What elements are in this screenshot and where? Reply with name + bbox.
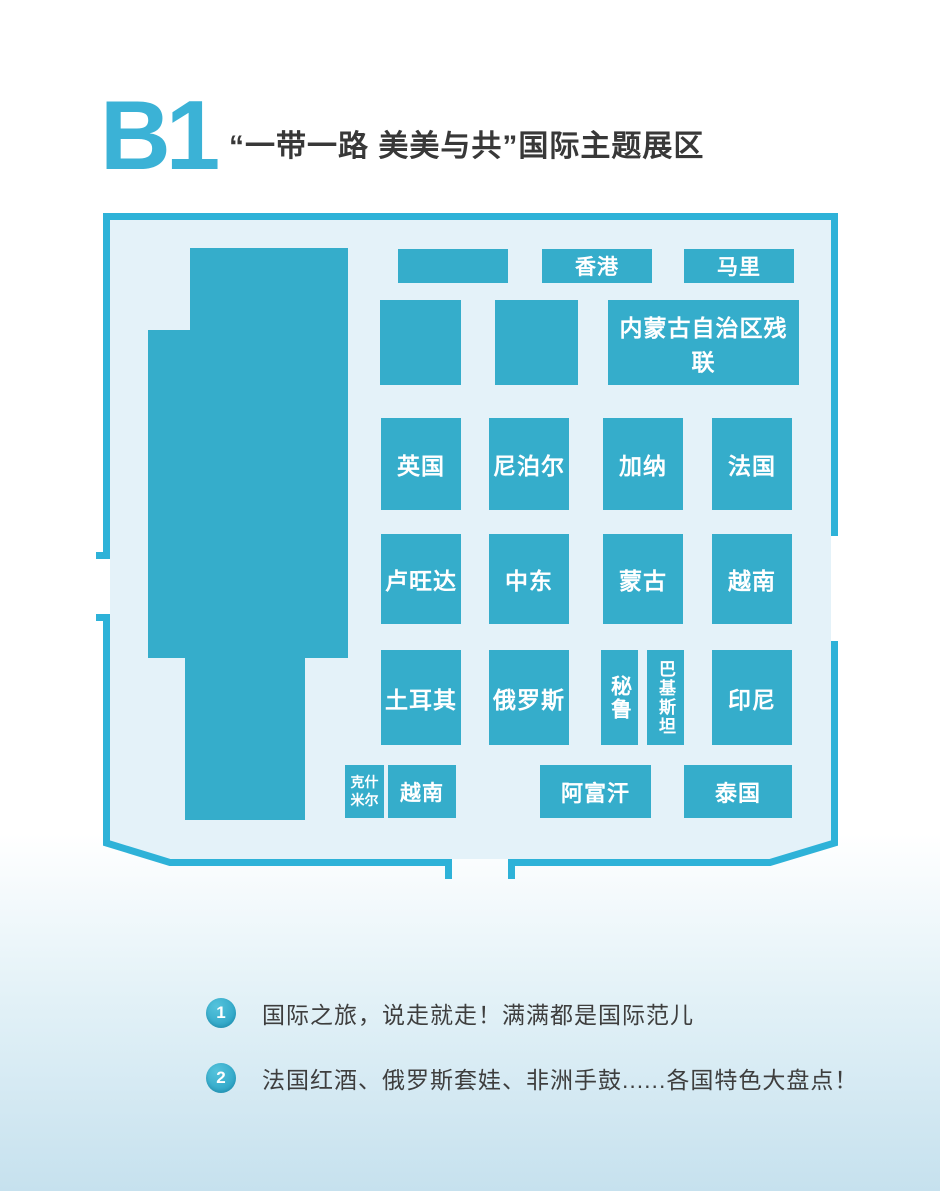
note-number-badge: 1 <box>206 998 236 1028</box>
booth-label: 尼泊尔 <box>493 447 565 481</box>
booth-label: 克什米尔 <box>351 774 379 809</box>
booth-卢旺达: 卢旺达 <box>381 534 461 624</box>
booth-label: 巴基斯坦 <box>653 660 678 736</box>
booth-俄罗斯: 俄罗斯 <box>489 650 569 745</box>
booth-内蒙古自治区残联: 内蒙古自治区残联 <box>608 300 799 385</box>
booth-香港: 香港 <box>542 249 652 283</box>
booth-label: 香港 <box>575 251 619 281</box>
booth-label: 俄罗斯 <box>493 681 565 715</box>
note-item-2: 2 法国红酒、俄罗斯套娃、非洲手鼓......各国特色大盘点！ <box>206 1063 858 1093</box>
booth-克什米尔: 克什米尔 <box>345 765 384 818</box>
booth-泰国: 泰国 <box>684 765 792 818</box>
booth-马里: 马里 <box>684 249 794 283</box>
booth-越南: 越南 <box>712 534 792 624</box>
booth-unlabeled <box>398 249 508 283</box>
booth-尼泊尔: 尼泊尔 <box>489 418 569 510</box>
booth-unlabeled <box>495 300 578 385</box>
booth-巴基斯坦: 巴基斯坦 <box>647 650 684 745</box>
booth-法国: 法国 <box>712 418 792 510</box>
note-text: 国际之旅，说走就走！满满都是国际范儿 <box>262 996 694 1030</box>
booth-label: 加纳 <box>619 447 667 481</box>
booth-label: 阿富汗 <box>561 776 630 808</box>
booth-label: 印尼 <box>728 681 776 715</box>
note-text: 法国红酒、俄罗斯套娃、非洲手鼓......各国特色大盘点！ <box>262 1061 858 1095</box>
booth-中东: 中东 <box>489 534 569 624</box>
booth-label: 越南 <box>728 562 776 596</box>
poster-page: B1 “一带一路 美美与共”国际主题展区 香港马里内蒙古自治区残联英国尼泊尔加纳… <box>0 0 940 1191</box>
booth-蒙古: 蒙古 <box>603 534 683 624</box>
booth-label: 马里 <box>717 251 761 281</box>
booth-label: 越南 <box>400 777 444 807</box>
booth-label: 土耳其 <box>385 681 457 715</box>
booth-英国: 英国 <box>381 418 461 510</box>
booth-unlabeled <box>380 300 461 385</box>
booth-秘鲁: 秘鲁 <box>601 650 638 745</box>
booth-加纳: 加纳 <box>603 418 683 510</box>
booth-label: 英国 <box>397 447 445 481</box>
note-item-1: 1 国际之旅，说走就走！满满都是国际范儿 <box>206 998 694 1028</box>
booth-label: 秘鲁 <box>605 675 635 721</box>
booth-label: 蒙古 <box>619 562 667 596</box>
booth-土耳其: 土耳其 <box>381 650 461 745</box>
booth-label: 卢旺达 <box>385 562 457 596</box>
booth-越南: 越南 <box>388 765 456 818</box>
booth-label: 泰国 <box>715 776 761 808</box>
booth-印尼: 印尼 <box>712 650 792 745</box>
booth-label: 内蒙古自治区残联 <box>608 309 799 377</box>
booth-阿富汗: 阿富汗 <box>540 765 651 818</box>
note-number-badge: 2 <box>206 1063 236 1093</box>
booth-label: 法国 <box>728 447 776 481</box>
booth-label: 中东 <box>505 562 553 596</box>
